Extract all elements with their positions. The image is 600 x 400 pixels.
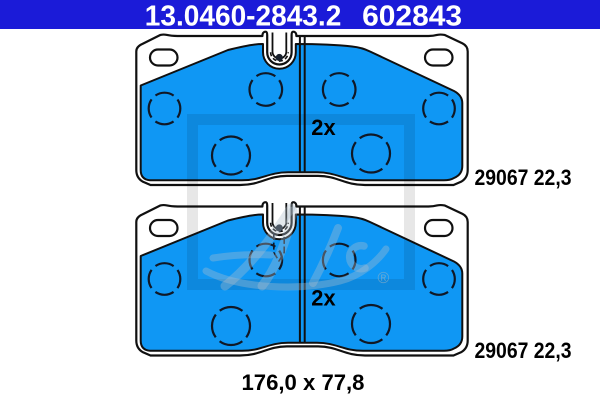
svg-text:602843: 602843	[362, 1, 462, 33]
svg-text:29067 22,3: 29067 22,3	[475, 338, 572, 363]
svg-text:13.0460-2843.2: 13.0460-2843.2	[145, 0, 341, 32]
svg-text:176,0 x 77,8: 176,0 x 77,8	[242, 370, 365, 395]
svg-text:29067 22,3: 29067 22,3	[475, 165, 572, 190]
svg-text:®: ®	[378, 270, 390, 287]
